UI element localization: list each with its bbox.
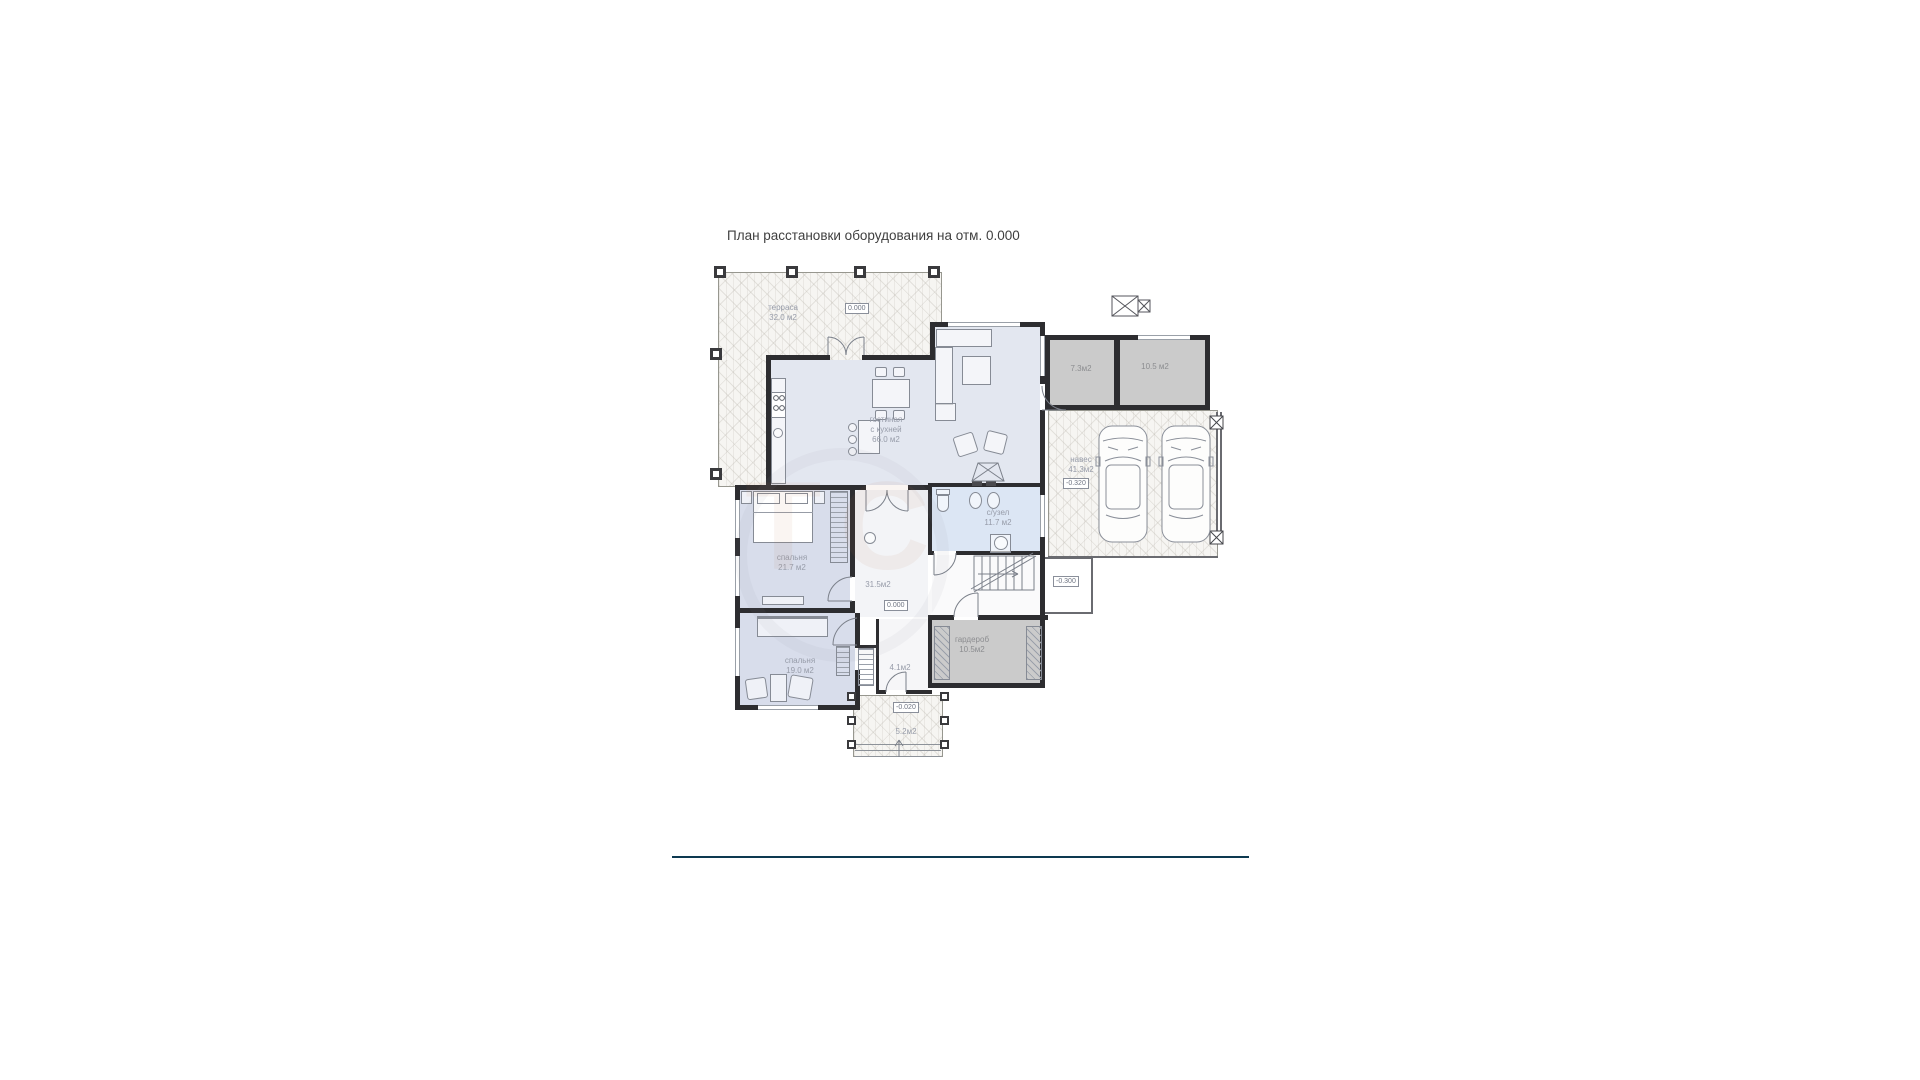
- dining-chair: [875, 367, 887, 377]
- wall: [1045, 335, 1050, 410]
- stove: [771, 392, 786, 418]
- vent-block: [972, 481, 982, 486]
- terrace-pillar: [710, 468, 722, 480]
- terrace-pillar: [714, 266, 726, 278]
- porch-pillar: [940, 740, 949, 749]
- side-porch-wall: [1045, 557, 1093, 559]
- bathroom-label: с/узел11.7 м2: [972, 508, 1024, 528]
- terrace-pillar: [786, 266, 798, 278]
- side-porch-wall: [1091, 557, 1093, 614]
- window: [735, 628, 740, 676]
- window: [1138, 335, 1190, 340]
- porch-step: [855, 756, 941, 757]
- porch-step: [855, 744, 941, 745]
- corner-sofa: [935, 347, 953, 405]
- elevation-marker-carport: -0.320: [1063, 478, 1089, 489]
- wall: [1205, 335, 1210, 410]
- bar-stool: [848, 435, 857, 444]
- living-label: гостинаяс кухней66.0 м2: [860, 415, 912, 445]
- footer-divider-line: [672, 856, 1249, 858]
- armchair: [745, 677, 769, 701]
- bar-stool: [848, 423, 857, 432]
- dining-table: [872, 379, 910, 408]
- side-table: [770, 674, 787, 702]
- sofa-seat: [935, 403, 956, 421]
- watermark-text: ТС: [745, 455, 948, 598]
- terrace-pillar: [710, 348, 722, 360]
- porch-step: [855, 750, 941, 751]
- sink: [969, 492, 982, 509]
- storage-small-label: 7.3м2: [1060, 364, 1102, 374]
- window: [758, 705, 818, 710]
- wall: [906, 690, 932, 694]
- wall: [1040, 553, 1045, 619]
- wall: [978, 615, 1048, 620]
- sink: [987, 492, 1000, 509]
- porch-pillar: [847, 692, 856, 701]
- elevation-marker-porch: -0.020: [893, 702, 919, 713]
- side-porch-wall: [1045, 612, 1093, 614]
- porch-pillar: [847, 716, 856, 725]
- storage-large-area: [1120, 340, 1205, 405]
- carport-wall: [1216, 412, 1218, 544]
- wall: [928, 619, 932, 687]
- chimney: [1112, 296, 1150, 316]
- corner-sofa: [936, 329, 992, 347]
- window: [948, 322, 1020, 327]
- terrace-pillar: [854, 266, 866, 278]
- wardrobe-label: гардероб10.5м2: [946, 635, 998, 655]
- storage-large-label: 10.5 м2: [1132, 362, 1178, 372]
- plan-title: План расстановки оборудования на отм. 0.…: [727, 228, 1020, 243]
- window: [1040, 495, 1045, 537]
- carport-wall: [1220, 412, 1222, 544]
- wall: [1114, 337, 1120, 407]
- floor-plan-page: План расстановки оборудования на отм. 0.…: [0, 0, 1920, 1080]
- porch-pillar: [940, 692, 949, 701]
- terrace-pillar: [928, 266, 940, 278]
- wall: [1045, 405, 1210, 410]
- porch-label: 5.2м2: [888, 727, 924, 737]
- armchair: [787, 674, 814, 701]
- carport-label: навес41.3м2: [1058, 455, 1104, 475]
- porch-pillar: [847, 740, 856, 749]
- window: [1040, 336, 1045, 376]
- wall: [876, 690, 886, 694]
- kitchen-sink: [773, 428, 783, 438]
- wall: [862, 355, 932, 360]
- wall: [766, 355, 830, 360]
- terrace-label: терраса32.0 м2: [748, 303, 818, 323]
- washing-machine-drum: [994, 536, 1008, 550]
- corridor-label: 4.1м2: [882, 663, 918, 673]
- elevation-marker-side: -0.300: [1053, 576, 1079, 587]
- coffee-table: [962, 356, 991, 385]
- vent-block: [986, 481, 996, 486]
- wall: [928, 683, 1045, 688]
- wardrobe-shelves: [1026, 626, 1042, 680]
- porch-pillar: [940, 716, 949, 725]
- dining-chair: [893, 367, 905, 377]
- elevation-marker-terrace: 0.000: [845, 303, 869, 314]
